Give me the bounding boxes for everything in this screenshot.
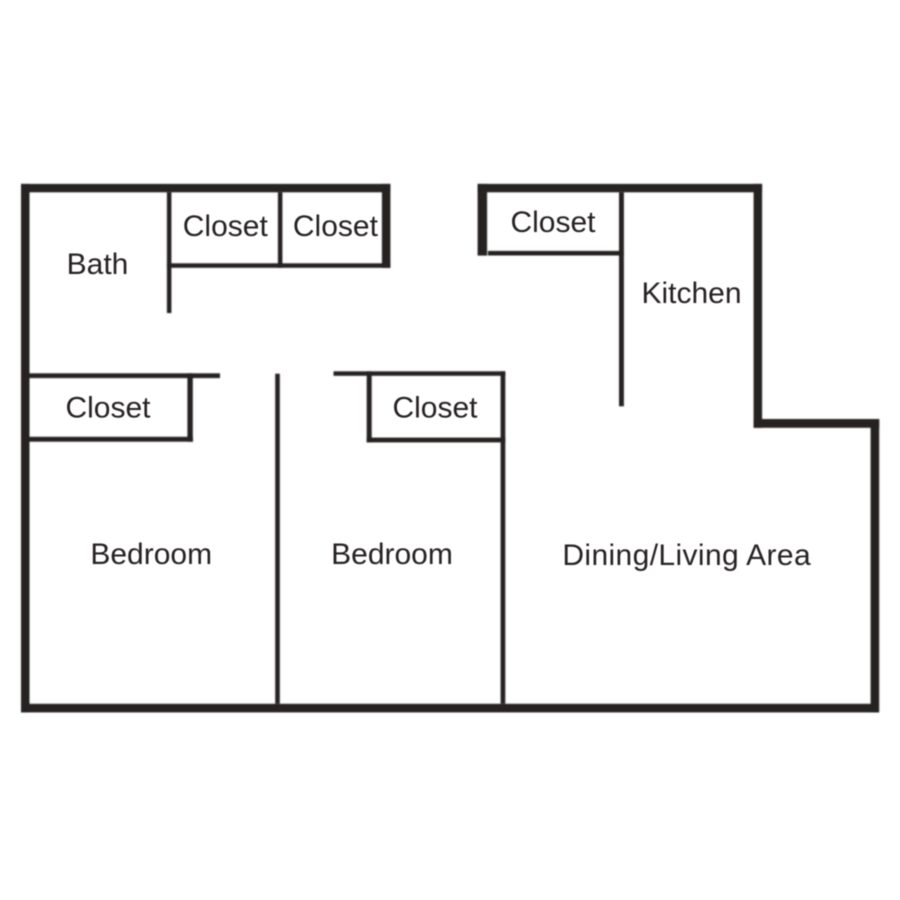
svg-text:Bedroom: Bedroom (90, 538, 212, 571)
svg-text:Bedroom: Bedroom (331, 538, 453, 571)
svg-text:Closet: Closet (65, 392, 151, 425)
svg-text:Closet: Closet (293, 210, 379, 243)
svg-text:Closet: Closet (510, 206, 596, 239)
svg-text:Kitchen: Kitchen (641, 277, 741, 310)
svg-text:Closet: Closet (183, 210, 269, 243)
svg-text:Bath: Bath (67, 248, 129, 281)
svg-text:Closet: Closet (392, 392, 478, 425)
svg-text:Dining/Living Area: Dining/Living Area (562, 539, 811, 572)
